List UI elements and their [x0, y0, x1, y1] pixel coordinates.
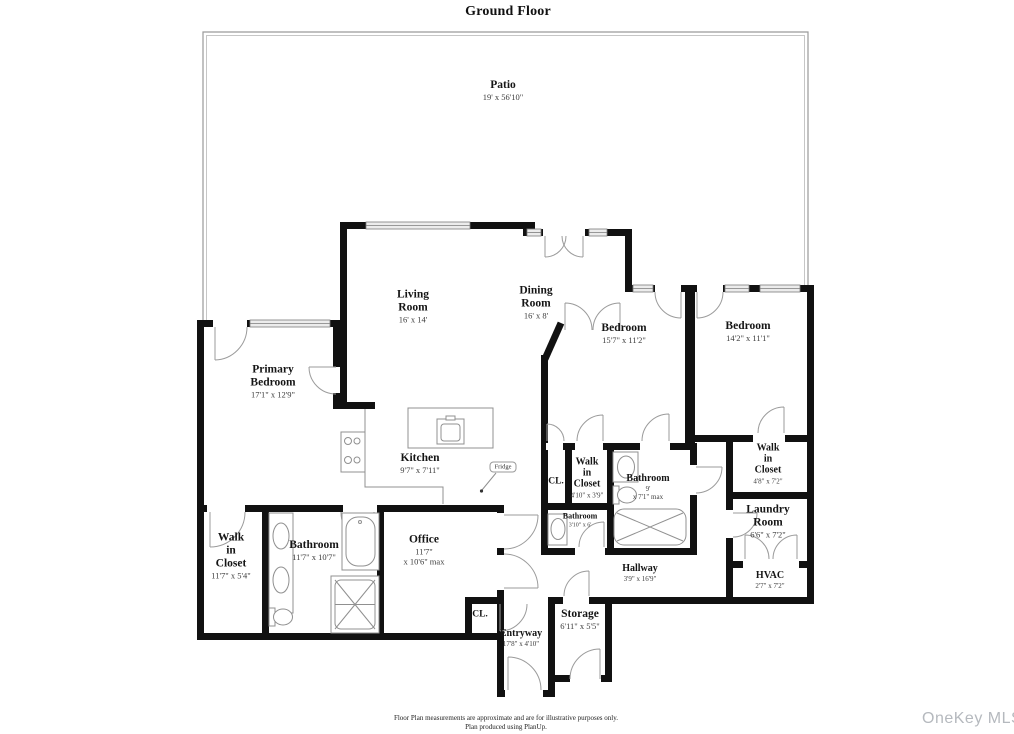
walls — [197, 222, 814, 697]
footer-disclaimer: Floor Plan measurements are approximate … — [394, 714, 618, 722]
shower — [331, 576, 379, 633]
stove — [341, 432, 365, 472]
onekey-mls-watermark: OneKey MLS — [922, 710, 1014, 728]
windows — [250, 222, 800, 327]
fridge-callout: Fridge — [490, 462, 517, 473]
linen-closet — [614, 509, 686, 545]
patio-outline — [203, 32, 808, 322]
toilet — [269, 608, 293, 626]
floorplan-page: Ground Floor Patio 19' x 56'10" Living R… — [0, 0, 1014, 734]
page-title: Ground Floor — [465, 4, 551, 20]
double-vanity — [269, 513, 293, 613]
fridge-marker — [480, 489, 483, 492]
bathtub — [342, 513, 379, 570]
floorplan-drawing — [0, 0, 1014, 734]
footer-credit: Plan produced using PlanUp. — [465, 723, 547, 731]
